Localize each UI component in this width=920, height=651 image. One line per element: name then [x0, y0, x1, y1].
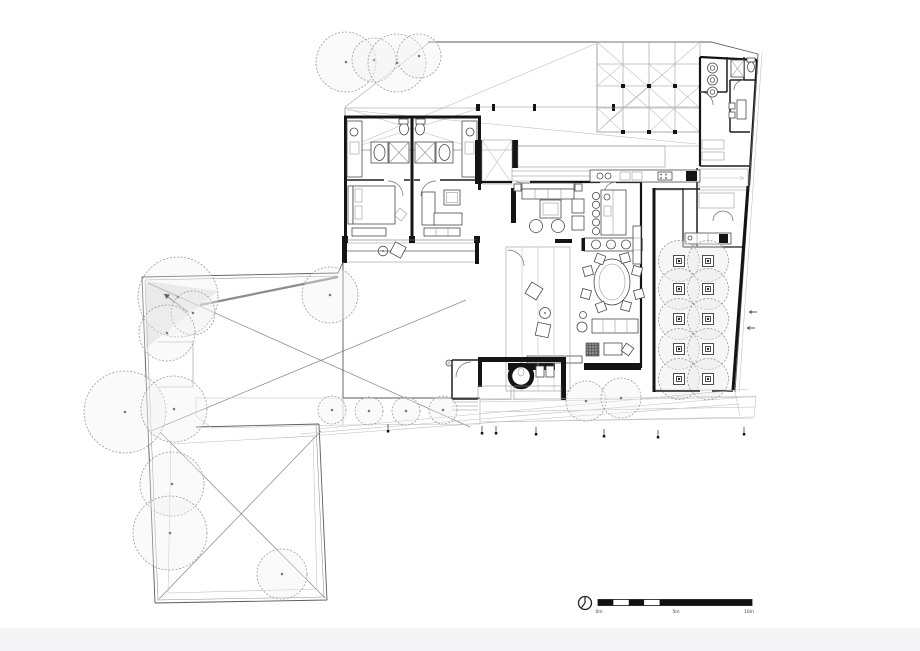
bathroom-right: [415, 119, 477, 196]
washing-machines: [708, 63, 718, 97]
living-room: [514, 183, 584, 233]
bedroom-left: [348, 186, 407, 236]
headboard: [348, 186, 353, 224]
toilet: [416, 123, 425, 135]
toilet: [748, 62, 755, 72]
bed: [353, 186, 395, 224]
lounger: [390, 242, 406, 258]
terrace-trees: [566, 378, 641, 421]
dining-table: [594, 259, 630, 305]
pergola-carport: [597, 42, 700, 134]
shelf: [633, 226, 641, 264]
north-arrow-icon: [579, 597, 592, 610]
floor-plan-drawing: 0m 5m 10m: [0, 0, 920, 651]
scale-bar: 0m 5m 10m: [595, 600, 753, 616]
bedroom-right: [422, 190, 462, 236]
family-area: [577, 312, 638, 357]
scale-label-end: 10m: [744, 609, 754, 615]
bathroom-left: [347, 119, 409, 196]
bedroom-wing: [342, 117, 481, 243]
grill: [719, 234, 728, 243]
range: [686, 171, 697, 181]
tree-cluster-top: [316, 32, 441, 92]
lounger: [535, 322, 550, 337]
bathtub: [436, 142, 453, 163]
stair-flight-lower: [699, 193, 734, 208]
lounger: [525, 282, 543, 300]
floor-plan-page: 0m 5m 10m: [0, 0, 920, 651]
bar-stools: [592, 192, 599, 234]
bathtub: [371, 142, 388, 163]
planter-grid: [659, 241, 729, 400]
kitchen-island: [601, 190, 626, 235]
scale-label-mid: 5m: [672, 609, 679, 615]
kitchen-counter: [590, 170, 700, 182]
legend: 0m 5m 10m: [579, 597, 754, 616]
bedroom-terrace: [342, 236, 479, 264]
toilet: [400, 123, 409, 135]
driveway-tree-row: [318, 396, 457, 425]
right-garden: [654, 190, 743, 400]
sofa: [422, 192, 435, 225]
staff-table: [737, 100, 746, 119]
scale-label-start: 0m: [595, 609, 602, 615]
service-block: [700, 57, 757, 186]
